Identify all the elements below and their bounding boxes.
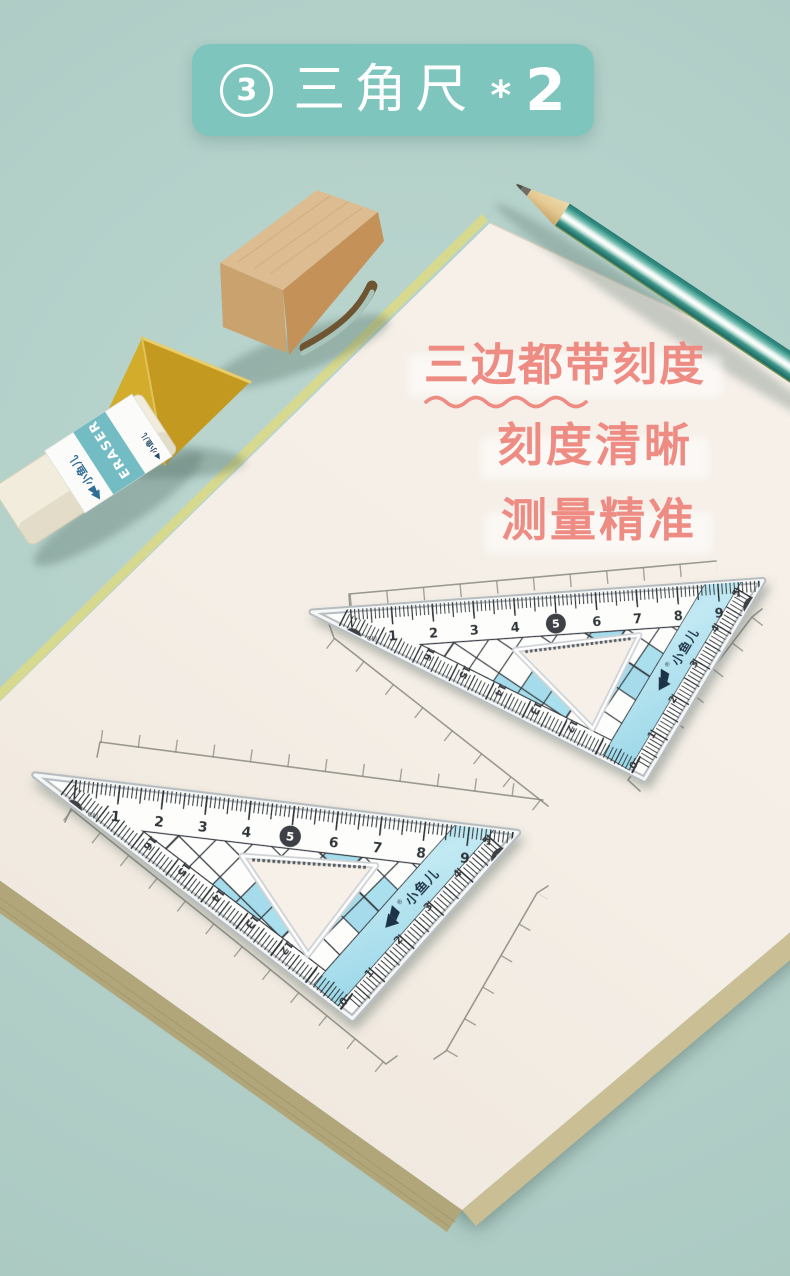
banner-number-circle: 3 (220, 64, 273, 117)
product-photo: 1 2 3 4 6 7 8 9 0 CM 5 10 16 (0, 0, 790, 1276)
caption-line-2: 刻度清晰 (497, 409, 693, 475)
wavy-underline (424, 391, 604, 411)
title-banner: 3 三角尺 * 2 (192, 44, 594, 136)
caption-line-1: 三边都带刻度 (424, 328, 706, 393)
banner-star: * (490, 73, 511, 119)
scene-canvas: 1 2 3 4 6 7 8 9 0 CM 5 10 16 (0, 0, 790, 1276)
banner-title: 三角尺 (293, 64, 476, 116)
banner-number: 3 (236, 73, 257, 108)
banner-count: 2 (525, 61, 565, 119)
caption-line-3: 测量精准 (501, 484, 697, 550)
